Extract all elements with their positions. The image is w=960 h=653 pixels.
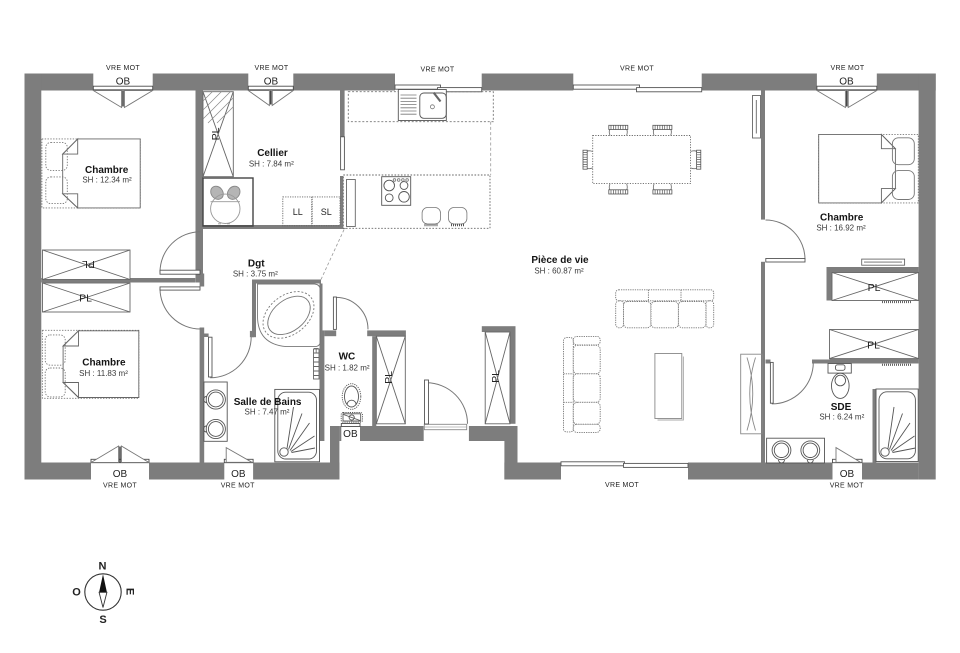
svg-text:SH : 11.83 m²: SH : 11.83 m² [79, 369, 128, 378]
svg-text:Pièce de vie: Pièce de vie [531, 255, 589, 266]
svg-text:PL: PL [868, 282, 881, 294]
svg-text:SH : 7.47 m²: SH : 7.47 m² [245, 407, 290, 416]
svg-text:VRE MOT: VRE MOT [255, 65, 289, 72]
svg-text:S: S [99, 614, 106, 626]
svg-text:VRE MOT: VRE MOT [106, 65, 140, 72]
svg-text:N: N [99, 560, 107, 572]
svg-text:VRE MOT: VRE MOT [831, 65, 865, 72]
svg-text:OB: OB [264, 77, 279, 88]
svg-text:Chambre: Chambre [820, 213, 864, 224]
svg-text:SH : 60.87 m²: SH : 60.87 m² [534, 266, 584, 275]
svg-text:SH : 16.92 m²: SH : 16.92 m² [816, 223, 866, 232]
svg-text:Dgt: Dgt [248, 259, 265, 270]
svg-text:WC: WC [339, 351, 356, 362]
svg-text:Chambre: Chambre [85, 165, 129, 176]
svg-text:O: O [72, 587, 81, 599]
svg-text:Cellier: Cellier [257, 148, 288, 159]
svg-text:SH : 6.24 m²: SH : 6.24 m² [819, 412, 864, 421]
svg-text:SH : 1.82 m²: SH : 1.82 m² [325, 363, 370, 372]
svg-text:OB: OB [116, 77, 131, 88]
svg-text:VRE MOT: VRE MOT [221, 483, 255, 490]
svg-text:OB: OB [840, 469, 855, 480]
svg-text:VRE MOT: VRE MOT [620, 66, 654, 73]
svg-text:Chambre: Chambre [82, 358, 126, 369]
svg-text:VRE MOT: VRE MOT [103, 483, 137, 490]
svg-text:PL: PL [82, 258, 95, 270]
svg-text:PL: PL [210, 127, 222, 140]
svg-text:OB: OB [231, 469, 246, 480]
svg-text:OB: OB [343, 429, 358, 440]
svg-text:OB: OB [839, 77, 854, 88]
svg-text:SH : 12.34 m²: SH : 12.34 m² [82, 176, 132, 185]
svg-text:SH : 3.75 m²: SH : 3.75 m² [233, 269, 278, 278]
svg-text:SH : 7.84 m²: SH : 7.84 m² [249, 160, 294, 169]
svg-text:LL: LL [293, 207, 303, 217]
svg-text:PL: PL [867, 340, 880, 352]
svg-text:SL: SL [321, 207, 332, 217]
svg-text:PL: PL [79, 293, 92, 305]
svg-text:OB: OB [113, 469, 128, 480]
svg-text:PL: PL [490, 370, 502, 383]
svg-text:VRE MOT: VRE MOT [421, 67, 455, 74]
svg-text:PL: PL [383, 371, 395, 384]
svg-text:VRE MOT: VRE MOT [605, 482, 639, 489]
svg-text:VRE MOT: VRE MOT [830, 483, 864, 490]
svg-text:E: E [123, 588, 135, 595]
